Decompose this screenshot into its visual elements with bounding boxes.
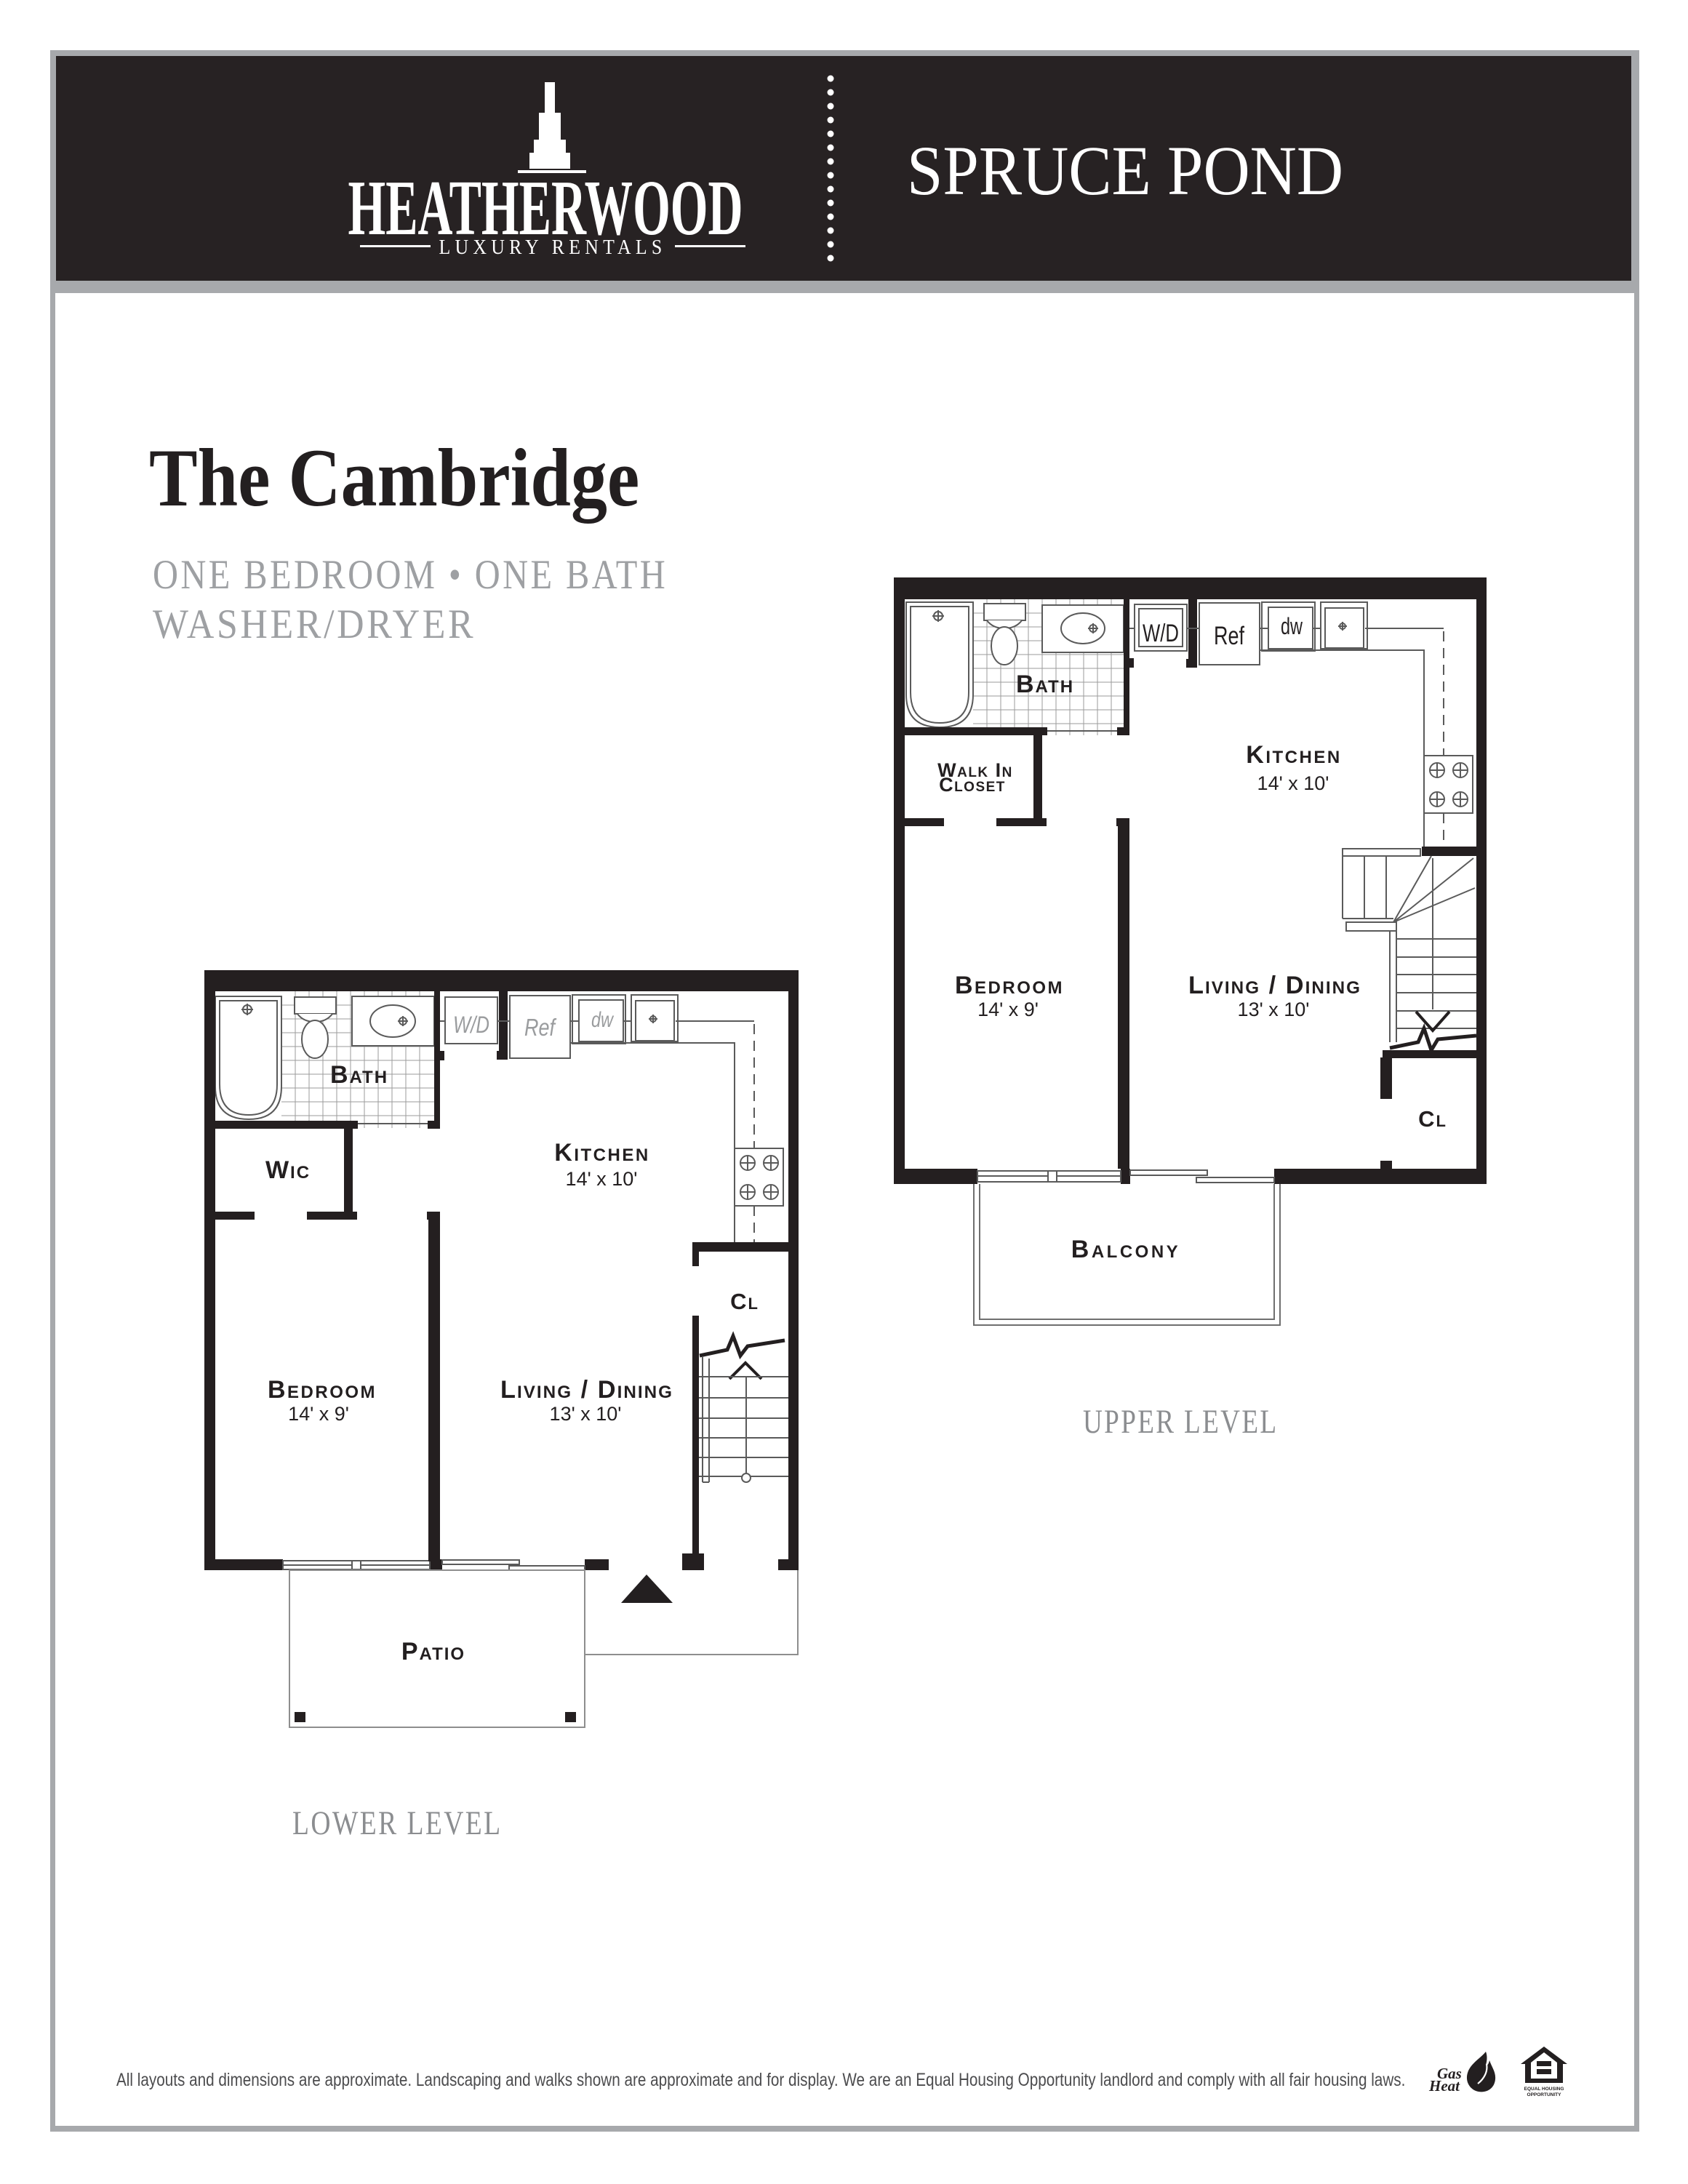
svg-text:Ref: Ref xyxy=(1214,622,1244,650)
svg-text:Living / Dining: Living / Dining xyxy=(1188,972,1361,999)
svg-text:14' x 9': 14' x 9' xyxy=(288,1403,349,1425)
svg-text:Wic: Wic xyxy=(265,1156,311,1184)
svg-text:13' x 10': 13' x 10' xyxy=(1238,999,1310,1020)
svg-text:Patio: Patio xyxy=(401,1638,465,1665)
svg-text:Cl: Cl xyxy=(730,1289,759,1314)
svg-text:dw: dw xyxy=(591,1008,615,1032)
svg-text:Bath: Bath xyxy=(1016,671,1074,698)
svg-text:Cl: Cl xyxy=(1418,1106,1447,1132)
svg-text:Ref: Ref xyxy=(524,1014,557,1041)
svg-text:Bedroom: Bedroom xyxy=(955,972,1064,999)
svg-text:OPPORTUNITY: OPPORTUNITY xyxy=(1527,2092,1562,2097)
svg-text:Kitchen: Kitchen xyxy=(554,1139,649,1167)
svg-text:14' x 10': 14' x 10' xyxy=(566,1168,638,1190)
svg-text:W/D: W/D xyxy=(1143,620,1179,647)
svg-text:14' x 10': 14' x 10' xyxy=(1257,772,1329,794)
svg-text:13' x 10': 13' x 10' xyxy=(550,1403,622,1425)
svg-text:14' x 9': 14' x 9' xyxy=(977,999,1039,1020)
svg-text:Heat: Heat xyxy=(1428,2077,1460,2095)
svg-text:Bath: Bath xyxy=(330,1061,388,1089)
svg-text:LUXURY RENTALS: LUXURY RENTALS xyxy=(439,236,667,259)
svg-text:Living / Dining: Living / Dining xyxy=(500,1376,673,1404)
svg-text:Bedroom: Bedroom xyxy=(268,1376,377,1404)
svg-text:W/D: W/D xyxy=(453,1012,489,1038)
svg-text:Balcony: Balcony xyxy=(1071,1236,1180,1263)
svg-text:dw: dw xyxy=(1281,613,1303,639)
svg-text:EQUAL HOUSING: EQUAL HOUSING xyxy=(1524,2087,1564,2092)
svg-text:SPRUCE POND: SPRUCE POND xyxy=(907,132,1343,209)
svg-text:Closet: Closet xyxy=(939,774,1006,796)
svg-text:Kitchen: Kitchen xyxy=(1246,741,1341,769)
